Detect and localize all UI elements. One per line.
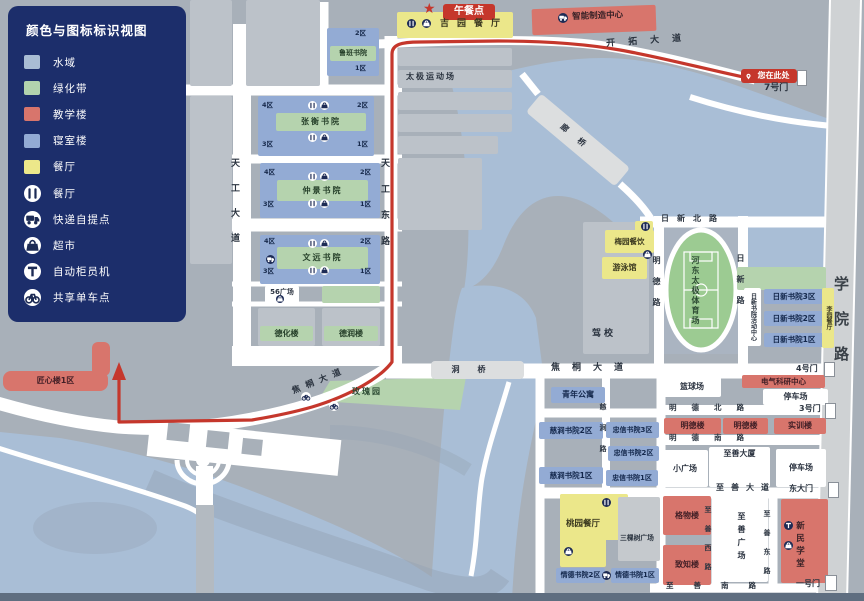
zhongxin-academy-2: 忠信书院2区 <box>608 446 659 461</box>
gate-7-label: 7号门 <box>764 84 788 93</box>
legend-label: 共享单车点 <box>53 290 111 305</box>
zhizhi-building-label: 致知楼 <box>675 561 699 569</box>
shop-icon <box>320 199 329 208</box>
bike-icon <box>329 401 339 411</box>
youth-apartment: 青年公寓 <box>551 387 605 403</box>
dongqiao-bridge-label: 洞桥 <box>452 366 504 374</box>
gate-4-label: 4号门 <box>796 365 818 373</box>
qingde-academy-2-label: 情德书院2区 <box>561 572 601 579</box>
bike-icon <box>24 289 41 306</box>
dongqiao-bridge: 洞桥 <box>431 361 524 379</box>
rixin-activity-center-label: 日新书院活动中心 <box>750 293 756 341</box>
gate-7 <box>797 70 807 86</box>
zone-label: 2区 <box>360 169 371 176</box>
gate-east <box>828 482 839 498</box>
rixin-academy-2-label: 日新书院2区 <box>773 315 816 323</box>
zone-label: 1区 <box>355 65 366 72</box>
fork-icon <box>308 133 317 142</box>
zone-label: 4区 <box>262 102 273 109</box>
legend-item: 餐厅 <box>24 154 172 180</box>
rose-garden-label: 玫瑰园 <box>352 388 382 396</box>
rixin-academy-1-label: 日新书院1区 <box>773 336 816 344</box>
gate-3 <box>825 403 836 419</box>
fork-icon <box>641 222 650 231</box>
gray-block-a <box>190 0 232 86</box>
youth-apartment-label: 青年公寓 <box>562 391 594 399</box>
road-rixin-north: 日新北路 <box>661 215 725 223</box>
qingde-academy-1: 情德书院1区 <box>611 568 659 583</box>
legend-item: 水域 <box>24 49 172 75</box>
legend-label: 快递自提点 <box>53 212 111 227</box>
legend-label: 餐厅 <box>53 186 76 201</box>
zone-label: 4区 <box>264 238 275 245</box>
legend-swatch <box>24 55 40 69</box>
qingde-academy-1-label: 情德书院1区 <box>615 572 655 579</box>
driving-school-label: 驾校 <box>592 330 616 339</box>
zhishan-tower: 至善大厦 <box>709 447 770 487</box>
gate-3-label: 3号门 <box>799 405 821 413</box>
small-plaza: 小广场 <box>662 450 708 487</box>
pin-icon <box>744 72 753 81</box>
truck-icon <box>266 255 275 264</box>
zhongxin-academy-3-label: 忠信书院3区 <box>613 427 653 434</box>
electrical-research-center: 电气科研中心 <box>742 375 825 388</box>
legend-item: 绿化带 <box>24 75 172 101</box>
zone-label: 1区 <box>360 201 371 208</box>
bike-icon <box>301 392 311 402</box>
gate-1-label: 一号门 <box>796 580 820 588</box>
fork-icon <box>308 199 317 208</box>
cijian-academy-2-label: 慈涧书院2区 <box>550 427 593 435</box>
zhongxin-academy-1: 忠信书院1区 <box>606 470 658 486</box>
fork-icon <box>308 172 317 181</box>
legend-swatch <box>24 81 40 95</box>
zone-label: 3区 <box>263 201 274 208</box>
zhongxin-academy-2-label: 忠信书院2区 <box>614 450 654 457</box>
legend-item: 自动柜员机 <box>24 259 172 285</box>
atm-icon <box>24 263 41 280</box>
shixun-building-label: 实训楼 <box>788 422 812 430</box>
legend-label: 餐厅 <box>53 159 76 174</box>
zone-label: 4区 <box>264 169 275 176</box>
lunch-star: ★ <box>423 2 436 16</box>
shop-icon <box>320 101 329 110</box>
green-strip-east <box>737 267 826 290</box>
swimming-hall-label: 游泳馆 <box>613 264 637 272</box>
atm-icon <box>784 521 793 530</box>
meiyuan-dining-label: 梅园餐饮 <box>615 238 645 246</box>
legend-label: 自动柜员机 <box>53 264 111 279</box>
road-mingde-north: 明德北路 <box>669 404 759 412</box>
parking-mid-label: 停车场 <box>789 464 813 472</box>
legend-label: 超市 <box>53 238 76 253</box>
you-are-here-badge-label: 您在此处 <box>758 72 790 80</box>
dehua-label-label: 德化楼 <box>275 330 299 338</box>
jiangxin-building-v <box>92 342 110 376</box>
fork-icon <box>308 101 317 110</box>
derun-label-label: 德润楼 <box>339 330 363 338</box>
legend-swatch <box>24 160 40 174</box>
court-slab-5 <box>398 136 498 154</box>
legend-label: 教学楼 <box>53 107 88 122</box>
gray-block-c <box>246 0 320 86</box>
shop-icon <box>24 237 41 254</box>
jiangxin-building-h: 匠心楼1区 <box>3 371 108 391</box>
shop-icon <box>320 172 329 181</box>
mingde-building-east: 明德楼 <box>723 418 768 434</box>
mingde-building-west: 明德楼 <box>664 418 721 434</box>
zhishan-plaza-label: 至善广场 <box>737 512 745 564</box>
road-xueyuan: 学院路 <box>833 276 848 381</box>
shop-icon <box>320 239 329 248</box>
parking-mid: 停车场 <box>776 449 826 487</box>
road-cijian: 慈涧路 <box>599 403 606 466</box>
gray-block-b <box>190 96 232 264</box>
luban-academy-label-label: 鲁班书院 <box>339 50 367 57</box>
road-zhishan-south: 至善南路 <box>666 582 776 590</box>
legend-item: 共享单车点 <box>24 285 172 311</box>
road-rixin: 日新路 <box>736 254 744 317</box>
basketball-court: 篮球场 <box>663 377 721 397</box>
rixin-academy-3: 日新书院3区 <box>764 289 824 304</box>
small-plaza-label: 小广场 <box>673 465 697 473</box>
electrical-research-center-label: 电气科研中心 <box>761 378 806 386</box>
legend-item: 超市 <box>24 232 172 258</box>
basketball-court-label: 篮球场 <box>680 383 704 391</box>
zone-label: 2区 <box>357 102 368 109</box>
truck-icon <box>24 211 41 228</box>
parking-north-label: 停车场 <box>784 393 808 401</box>
road-jiaotong-ave: 焦桐大道 <box>551 364 635 373</box>
lunch-point-badge-label: 午餐点 <box>454 7 484 17</box>
legend-items: 水域绿化带教学楼寝室楼餐厅餐厅快递自提点超市自动柜员机共享单车点 <box>24 49 172 311</box>
cijian-academy-2: 慈涧书院2区 <box>539 422 603 439</box>
fork-icon <box>308 239 317 248</box>
qingde-academy-2: 情德书院2区 <box>556 568 605 583</box>
gate-east-label: 东大门 <box>789 485 813 493</box>
zone-label: 3区 <box>262 141 273 148</box>
lunch-point-badge: 午餐点 <box>443 4 495 20</box>
cijian-academy-1: 慈涧书院1区 <box>539 467 603 484</box>
rixin-activity-center: 日新书院活动中心 <box>744 288 761 346</box>
court-slab-3 <box>398 92 512 110</box>
zone-label: 3区 <box>263 268 274 275</box>
zhishan-tower-label: 至善大厦 <box>724 450 756 458</box>
legend-item: 快递自提点 <box>24 206 172 232</box>
fork-icon <box>407 19 416 28</box>
mingde-building-east-label: 明德楼 <box>734 422 758 430</box>
dehua-label: 德化楼 <box>260 326 313 341</box>
parking-north: 停车场 <box>763 389 828 405</box>
cijian-academy-1-label: 慈涧书院1区 <box>550 472 593 480</box>
fork-icon <box>24 185 41 202</box>
legend-label: 绿化带 <box>53 81 88 96</box>
road-tiangong-east: 天工东路 <box>379 158 388 262</box>
zhangheng-academy-label-label: 张衡书院 <box>301 118 341 126</box>
legend-swatch <box>24 134 40 148</box>
zhishan-plaza: 至善广场 <box>714 494 768 582</box>
legend-item: 寝室楼 <box>24 128 172 154</box>
zone-label: 1区 <box>360 268 371 275</box>
court-slab-1 <box>398 48 512 66</box>
gewu-building-label: 格物楼 <box>675 512 699 520</box>
taiji-field-label: 太极运动场 <box>406 73 456 81</box>
taoyuan-label: 桃园餐厅 <box>566 520 600 529</box>
road-mingde: 明德路 <box>652 256 660 319</box>
rixin-academy-2: 日新书院2区 <box>764 311 824 326</box>
shop-icon <box>643 250 652 259</box>
zone-label: 2区 <box>355 30 366 37</box>
jiyuan-label: 吉园餐厅 <box>440 20 508 29</box>
shop-icon <box>276 295 284 303</box>
mingde-building-west-label: 明德楼 <box>681 422 705 430</box>
jiangxin-building-h-label: 匠心楼1区 <box>37 377 75 385</box>
legend-title: 颜色与图标标识视图 <box>26 20 172 39</box>
wenyuan-academy-label-label: 文远书院 <box>303 254 343 262</box>
derun-label: 德润楼 <box>324 326 378 341</box>
road-zhishan-east: 至善东路 <box>763 510 770 586</box>
shop-icon <box>422 19 431 28</box>
xinmin-label: 新民学堂 <box>795 521 804 571</box>
zhongxin-academy-3: 忠信书院3区 <box>606 422 659 438</box>
court-slab-6 <box>398 158 482 230</box>
zhongjing-academy-label: 仲景书院 <box>277 180 368 201</box>
court-slab-4 <box>398 114 512 132</box>
stadium-label: 河东太极体育场 <box>691 256 699 326</box>
truck-icon <box>558 13 568 23</box>
campus-map-canvas[interactable]: 鲁班书院张衡书院仲景书院文远书院56广场德化楼德润楼梅园餐饮游泳馆日新书院活动中… <box>0 0 864 601</box>
zhangheng-academy-label: 张衡书院 <box>276 113 366 131</box>
swimming-hall: 游泳馆 <box>602 257 647 279</box>
road-mingde-south: 明德南路 <box>669 434 759 442</box>
shop-icon <box>320 266 329 275</box>
zhongxin-academy-1-label: 忠信书院1区 <box>612 475 652 482</box>
truck-icon <box>602 571 611 580</box>
legend-item: 餐厅 <box>24 180 172 206</box>
rixin-academy-3-label: 日新书院3区 <box>773 293 816 301</box>
gate-1 <box>825 575 837 591</box>
shop-icon <box>564 547 573 556</box>
road-tiangong-ave: 天工大道 <box>229 158 238 258</box>
road-zhishan-ave: 至善大道 <box>716 484 776 492</box>
fork-icon <box>602 498 611 507</box>
shop-icon <box>784 541 793 550</box>
fork-icon <box>308 266 317 275</box>
legend-label: 水域 <box>53 55 76 70</box>
legend-label: 寝室楼 <box>53 133 88 148</box>
green-strip-56 <box>322 286 380 303</box>
zone-label: 1区 <box>357 141 368 148</box>
zone-label: 2区 <box>360 238 371 245</box>
zhongjing-academy-label-label: 仲景书院 <box>303 187 343 195</box>
legend-swatch <box>24 107 40 121</box>
legend-panel: 颜色与图标标识视图 水域绿化带教学楼寝室楼餐厅餐厅快递自提点超市自动柜员机共享单… <box>8 6 186 322</box>
three-trees-plaza-block <box>618 497 660 561</box>
legend-item: 教学楼 <box>24 101 172 127</box>
shop-icon <box>320 133 329 142</box>
three-trees-label: 三棵树广场 <box>620 535 654 542</box>
mfg-center-label: 智能制造中心 <box>572 11 623 21</box>
shixun-building: 实训楼 <box>774 418 826 434</box>
luban-academy-label: 鲁班书院 <box>330 46 376 61</box>
road-zhishan-west: 至善西路 <box>704 506 711 582</box>
liyuan-dining-label: 李园餐厅 <box>825 306 831 330</box>
rixin-academy-1: 日新书院1区 <box>764 333 824 347</box>
